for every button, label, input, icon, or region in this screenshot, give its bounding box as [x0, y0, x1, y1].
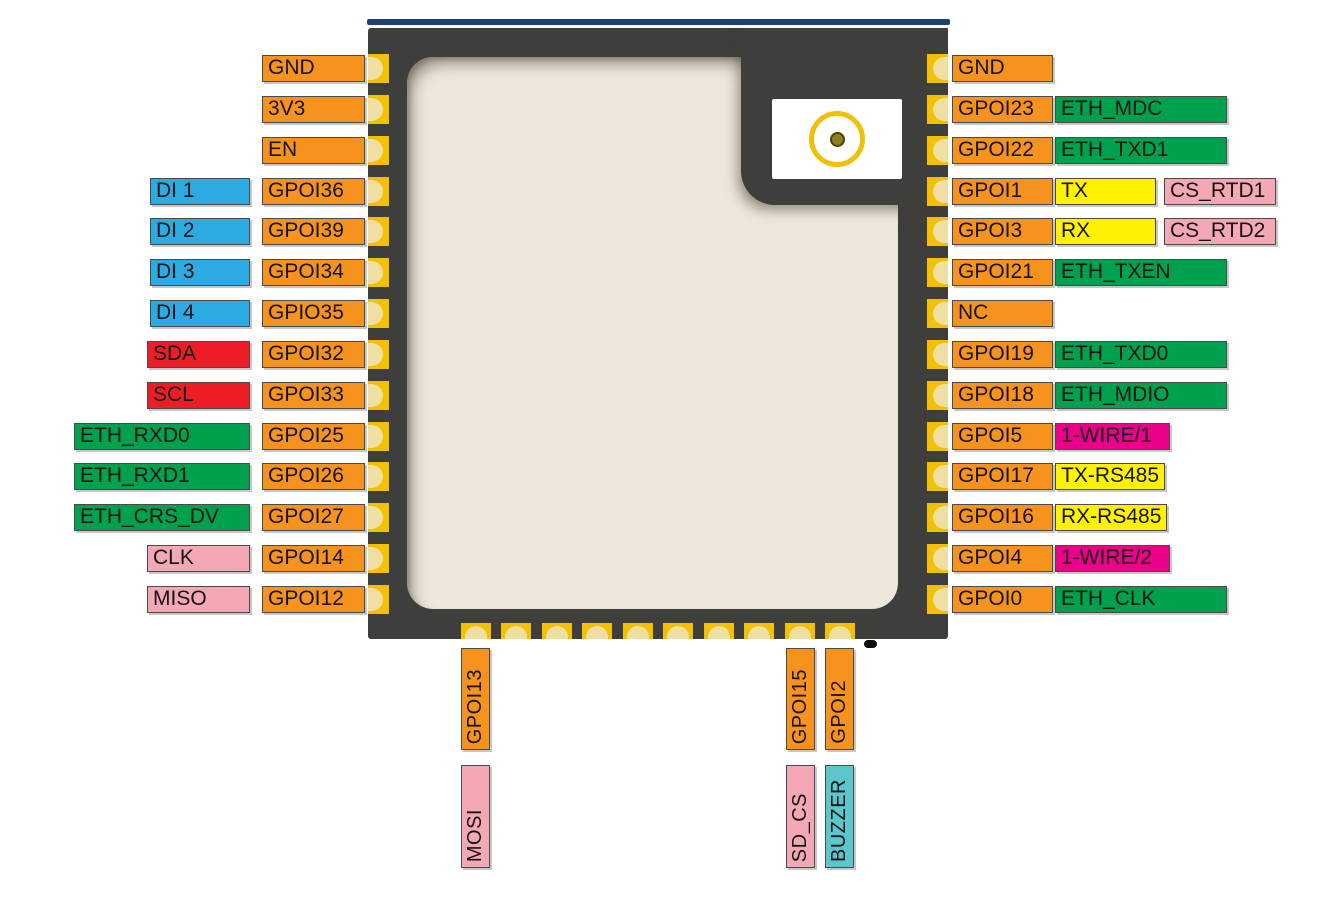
- signal-label: MISO: [147, 586, 250, 613]
- castellated-pin: [368, 177, 389, 206]
- signal-label: ETH_RXD0: [74, 423, 250, 450]
- gpio-pin-label: GPOI25: [262, 423, 365, 450]
- castellated-pin: [927, 462, 948, 491]
- signal-label: ETH_CRS_DV: [74, 504, 250, 531]
- castellated-pin: [368, 54, 389, 83]
- castellated-pin: [368, 462, 389, 491]
- gpio-pin-label: GPOI33: [262, 382, 365, 409]
- gpio-pin-label: GPOI32: [262, 341, 365, 368]
- castellated-pin: [744, 623, 774, 639]
- gpio-pin-label: GPOI26: [262, 463, 365, 490]
- castellated-pin: [825, 623, 855, 639]
- castellated-pin: [368, 381, 389, 410]
- castellated-pin: [501, 623, 531, 639]
- gpio-pin-label: GPOI15: [786, 648, 815, 750]
- signal-label: DI 3: [150, 259, 250, 286]
- gpio-pin-label: GPOI3: [952, 218, 1053, 245]
- gpio-pin-label: GPOI21: [952, 259, 1053, 286]
- gpio-pin-label: GPOI18: [952, 382, 1053, 409]
- castellated-pin: [927, 544, 948, 573]
- castellated-pin: [368, 340, 389, 369]
- signal-label: SD_CS: [786, 765, 815, 868]
- castellated-pin: [542, 623, 572, 639]
- castellated-pin: [623, 623, 653, 639]
- signal-label-text: BUZZER: [828, 779, 851, 867]
- signal-label: RX: [1055, 218, 1156, 245]
- signal-label: DI 4: [150, 300, 250, 327]
- signal-label-text: MOSI: [464, 809, 487, 867]
- castellated-pin: [927, 585, 948, 614]
- gpio-pin-label: GPOI4: [952, 545, 1053, 572]
- signal-label: ETH_CLK: [1055, 586, 1227, 613]
- castellated-pin: [368, 422, 389, 451]
- antenna-ring: [809, 111, 865, 167]
- gpio-pin-label-text: GPOI13: [464, 669, 487, 749]
- antenna-connector: [772, 99, 902, 179]
- castellated-pin: [927, 503, 948, 532]
- castellated-pin: [368, 217, 389, 246]
- gpio-pin-label: GPOI16: [952, 504, 1053, 531]
- signal-label: ETH_MDIO: [1055, 382, 1227, 409]
- gpio-pin-label: GPOI1: [952, 178, 1053, 205]
- signal-label: ETH_TXD0: [1055, 341, 1227, 368]
- pin1-indicator: [864, 640, 877, 648]
- signal-label: DI 2: [150, 218, 250, 245]
- signal-label: ETH_TXD1: [1055, 137, 1227, 164]
- castellated-pin: [704, 623, 734, 639]
- castellated-pin: [927, 340, 948, 369]
- gpio-pin-label-text: GPOI2: [828, 680, 851, 749]
- castellated-pin: [785, 623, 815, 639]
- signal-label-text: SD_CS: [789, 793, 812, 867]
- castellated-pin: [368, 544, 389, 573]
- castellated-pin: [927, 95, 948, 124]
- gpio-pin-label: GPOI5: [952, 423, 1053, 450]
- signal-label: TX-RS485: [1055, 463, 1165, 490]
- esp32-module-pinout-diagram: GND3V3ENGPOI36DI 1GPOI39DI 2GPOI34DI 3GP…: [0, 0, 1328, 914]
- castellated-pin: [368, 136, 389, 165]
- gpio-pin-label: GPOI14: [262, 545, 365, 572]
- castellated-pin: [368, 585, 389, 614]
- gpio-pin-label: GPOI17: [952, 463, 1053, 490]
- signal-label: CS_RTD1: [1164, 178, 1276, 205]
- module-top-edge-line: [367, 19, 950, 25]
- castellated-pin: [663, 623, 693, 639]
- castellated-pin: [927, 217, 948, 246]
- signal-label: ETH_TXEN: [1055, 259, 1227, 286]
- castellated-pin: [582, 623, 612, 639]
- castellated-pin: [368, 299, 389, 328]
- castellated-pin: [927, 422, 948, 451]
- signal-label: RX-RS485: [1055, 504, 1167, 531]
- castellated-pin: [368, 258, 389, 287]
- signal-label: SDA: [147, 341, 250, 368]
- gpio-pin-label: GPOI13: [461, 648, 490, 750]
- gpio-pin-label: GPOI39: [262, 218, 365, 245]
- gpio-pin-label: GPOI36: [262, 178, 365, 205]
- signal-label: MOSI: [461, 765, 490, 868]
- gpio-pin-label: GPOI34: [262, 259, 365, 286]
- gpio-pin-label: GND: [262, 55, 365, 82]
- gpio-pin-label: GPOI0: [952, 586, 1053, 613]
- signal-label: 1-WIRE/2: [1055, 545, 1170, 572]
- signal-label: ETH_MDC: [1055, 96, 1227, 123]
- gpio-pin-label: GPOI2: [825, 648, 854, 750]
- castellated-pin: [927, 177, 948, 206]
- castellated-pin: [927, 381, 948, 410]
- castellated-pin: [927, 258, 948, 287]
- signal-label: BUZZER: [825, 765, 854, 868]
- gpio-pin-label: GPOI23: [952, 96, 1053, 123]
- castellated-pin: [461, 623, 491, 639]
- castellated-pin: [368, 95, 389, 124]
- castellated-pin: [927, 299, 948, 328]
- signal-label: SCL: [147, 382, 250, 409]
- gpio-pin-label: GPIO35: [262, 300, 365, 327]
- gpio-pin-label: GPOI22: [952, 137, 1053, 164]
- gpio-pin-label: NC: [952, 300, 1053, 327]
- signal-label: CLK: [147, 545, 250, 572]
- signal-label: ETH_RXD1: [74, 463, 250, 490]
- signal-label: TX: [1055, 178, 1156, 205]
- gpio-pin-label: EN: [262, 137, 365, 164]
- castellated-pin: [927, 136, 948, 165]
- signal-label: 1-WIRE/1: [1055, 423, 1170, 450]
- gpio-pin-label: GND: [952, 55, 1053, 82]
- gpio-pin-label: GPOI27: [262, 504, 365, 531]
- signal-label: CS_RTD2: [1164, 218, 1276, 245]
- gpio-pin-label-text: GPOI15: [789, 669, 812, 749]
- castellated-pin: [927, 54, 948, 83]
- castellated-pin: [368, 503, 389, 532]
- gpio-pin-label: GPOI19: [952, 341, 1053, 368]
- antenna-center-dot: [830, 132, 845, 147]
- gpio-pin-label: GPOI12: [262, 586, 365, 613]
- gpio-pin-label: 3V3: [262, 96, 365, 123]
- signal-label: DI 1: [150, 178, 250, 205]
